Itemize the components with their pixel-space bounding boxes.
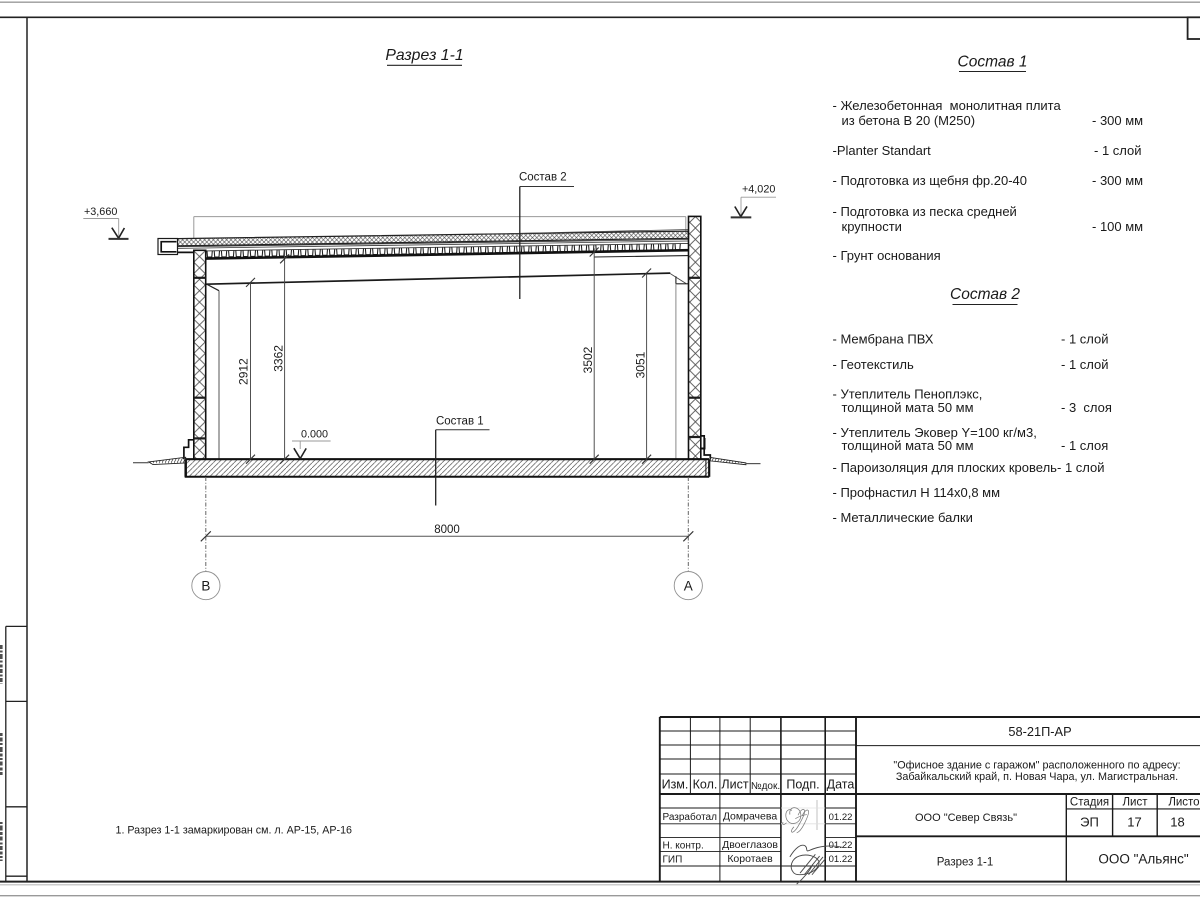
- svg-text:Двоеглазов: Двоеглазов: [722, 839, 778, 851]
- svg-text:из бетона В 20 (М250): из бетона В 20 (М250): [842, 113, 976, 128]
- svg-text:2912: 2912: [237, 358, 251, 385]
- svg-text:ООО "Север Связь": ООО "Север Связь": [915, 812, 1017, 824]
- svg-text:Кол.: Кол.: [693, 778, 718, 792]
- svg-text:- Мембрана ПВХ: - Мембрана ПВХ: [833, 332, 934, 347]
- svg-text:Разрез 1-1: Разрез 1-1: [937, 857, 993, 869]
- svg-text:ГИП: ГИП: [663, 854, 683, 865]
- svg-text:"Офисное здание с гаражом" рас: "Офисное здание с гаражом" расположенног…: [893, 760, 1180, 772]
- svg-text:- 1 слой: - 1 слой: [1094, 143, 1142, 158]
- svg-text:Разработал: Разработал: [663, 811, 718, 823]
- svg-text:17: 17: [1127, 815, 1141, 830]
- svg-text:- 300 мм: - 300 мм: [1092, 173, 1143, 188]
- svg-text:толщиной мата 50 мм: толщиной мата 50 мм: [842, 400, 974, 415]
- svg-text:ООО "Альянс": ООО "Альянс": [1098, 852, 1188, 867]
- svg-text:3362: 3362: [271, 345, 285, 372]
- svg-text:3051: 3051: [633, 351, 647, 378]
- svg-text:58-21П-АР: 58-21П-АР: [1008, 724, 1071, 739]
- svg-text:+3,660: +3,660: [84, 206, 117, 218]
- svg-text:Состав 1: Состав 1: [958, 54, 1028, 71]
- svg-text:Домрачева: Домрачева: [723, 811, 778, 823]
- svg-text:01.22: 01.22: [829, 812, 853, 823]
- svg-text:Коротаев: Коротаев: [727, 853, 773, 865]
- svg-text:3502: 3502: [581, 346, 595, 373]
- svg-text:№док.: №док.: [751, 781, 780, 792]
- svg-text:В: В: [201, 579, 210, 594]
- svg-text:- 1 слой: - 1 слой: [1061, 357, 1109, 372]
- svg-text:1. Разрез 1-1 замаркирован см.: 1. Разрез 1-1 замаркирован см. л. АР-15,…: [116, 825, 353, 837]
- svg-text:Подп.: Подп.: [786, 778, 819, 792]
- svg-text:Изм.: Изм.: [662, 778, 689, 792]
- svg-text:- Металлические балки: - Металлические балки: [833, 510, 973, 525]
- svg-text:Листов: Листов: [1168, 797, 1200, 809]
- svg-text:- 300 мм: - 300 мм: [1092, 113, 1143, 128]
- svg-text:- Грунт основания: - Грунт основания: [833, 248, 941, 263]
- svg-text:- Геотекстиль: - Геотекстиль: [833, 357, 914, 372]
- svg-text:Стадия: Стадия: [1070, 797, 1109, 809]
- svg-text:-Planter Standart: -Planter Standart: [833, 143, 932, 158]
- svg-text:- 1 слой: - 1 слой: [1057, 460, 1105, 475]
- svg-text:8000: 8000: [434, 524, 460, 536]
- svg-text:Состав 2: Состав 2: [950, 286, 1020, 303]
- svg-text:- Пароизоляция для плоских кро: - Пароизоляция для плоских кровель: [833, 460, 1058, 475]
- svg-text:толщиной мата 50 мм: толщиной мата 50 мм: [842, 438, 974, 453]
- svg-text:Состав 1: Состав 1: [436, 416, 484, 428]
- svg-text:Забайкальский край, п. Новая Ч: Забайкальский край, п. Новая Чара, ул. М…: [896, 771, 1178, 783]
- svg-text:крупности: крупности: [842, 219, 902, 234]
- svg-text:- 3 слоя: - 3 слоя: [1061, 400, 1112, 415]
- svg-text:+4,020: +4,020: [742, 184, 775, 196]
- svg-text:- Железобетонная монолитная п: - Железобетонная монолитная плита: [833, 98, 1062, 113]
- svg-text:- 1 слой: - 1 слой: [1061, 332, 1109, 347]
- svg-text:- 100 мм: - 100 мм: [1092, 219, 1143, 234]
- svg-text:Лист: Лист: [721, 778, 748, 792]
- svg-text:- Профнастил Н 114х0,8 мм: - Профнастил Н 114х0,8 мм: [833, 485, 1001, 500]
- svg-text:- 1 слоя: - 1 слоя: [1061, 438, 1108, 453]
- svg-text:Разрез 1-1: Разрез 1-1: [385, 47, 463, 64]
- svg-text:А: А: [684, 579, 693, 594]
- svg-text:Дата: Дата: [827, 778, 855, 792]
- svg-text:18: 18: [1170, 815, 1184, 830]
- svg-text:Лист: Лист: [1123, 797, 1149, 809]
- svg-text:Состав 2: Состав 2: [519, 172, 567, 184]
- svg-text:ЭП: ЭП: [1080, 815, 1099, 830]
- svg-text:Н. контр.: Н. контр.: [663, 840, 704, 851]
- svg-text:01.22: 01.22: [829, 854, 853, 865]
- svg-text:0.000: 0.000: [301, 429, 328, 441]
- svg-text:- Подготовка из щебня фр.20-40: - Подготовка из щебня фр.20-40: [833, 173, 1028, 188]
- svg-text:- Подготовка из песка средней: - Подготовка из песка средней: [833, 204, 1017, 219]
